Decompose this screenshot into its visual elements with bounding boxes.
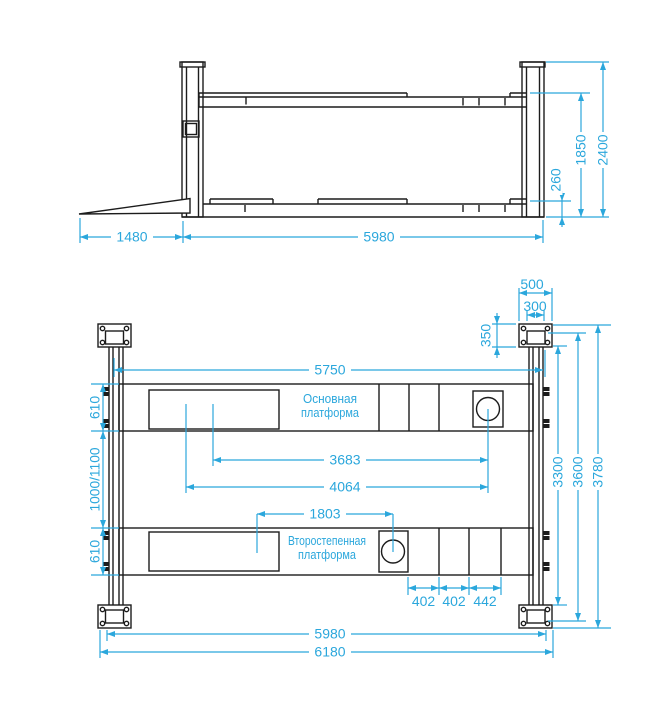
dim-4064: 4064: [329, 479, 360, 495]
dim-1803: 1803: [309, 506, 340, 522]
dim-drive-on-height: 260: [548, 168, 564, 192]
dim-overall-length: 6180: [314, 644, 345, 660]
secondary-platform-label-line1: Второстепенная: [288, 534, 366, 548]
dim-base-plate-width: 500: [520, 276, 544, 292]
dim-segment-3: 442: [473, 593, 497, 609]
dim-platform-width-top: 610: [87, 396, 103, 420]
right-post: [522, 62, 544, 217]
dim-base-plate-inner: 300: [523, 298, 547, 314]
right-post-cap: [520, 62, 545, 67]
drive-on-ramp: [79, 199, 190, 215]
dim-segment-1: 402: [412, 593, 436, 609]
secondary-platform-label-line2: платформа: [298, 548, 356, 562]
dim-segment-2: 402: [442, 593, 466, 609]
raised-platform-beam: [199, 93, 527, 107]
dim-width-3300: 3300: [550, 456, 566, 487]
drawing-canvas: 1480 5980 260 1850 2400: [0, 0, 669, 720]
dim-platform-span: 5750: [314, 362, 345, 378]
four-post-lift-drawing: 1480 5980 260 1850 2400: [0, 0, 669, 720]
dim-base-plate-depth: 350: [478, 324, 494, 348]
base-plate-top-left: [98, 324, 131, 347]
side-view: [79, 62, 545, 217]
dim-width-3780: 3780: [590, 456, 606, 487]
dim-platform-width-bottom: 610: [87, 540, 103, 564]
dim-length-5980: 5980: [314, 626, 345, 642]
dim-post-height: 2400: [595, 134, 611, 165]
main-platform-label-line2: платформа: [301, 406, 359, 420]
main-platform-label-line1: Основная: [303, 392, 357, 406]
base-plate-bottom-left: [98, 605, 131, 628]
dim-width-3600: 3600: [570, 456, 586, 487]
dim-3683: 3683: [329, 452, 360, 468]
base-plate-bottom-right: [519, 605, 552, 628]
dim-length-side: 5980: [363, 229, 394, 245]
base-plate-top-right: [519, 324, 552, 347]
dim-track-width: 1000/1100: [87, 447, 103, 511]
dim-lift-height: 1850: [573, 134, 589, 165]
lowered-platform: [203, 199, 527, 212]
dim-ramp-length: 1480: [116, 229, 147, 245]
left-post: [182, 62, 203, 217]
left-post-cap: [180, 62, 205, 67]
